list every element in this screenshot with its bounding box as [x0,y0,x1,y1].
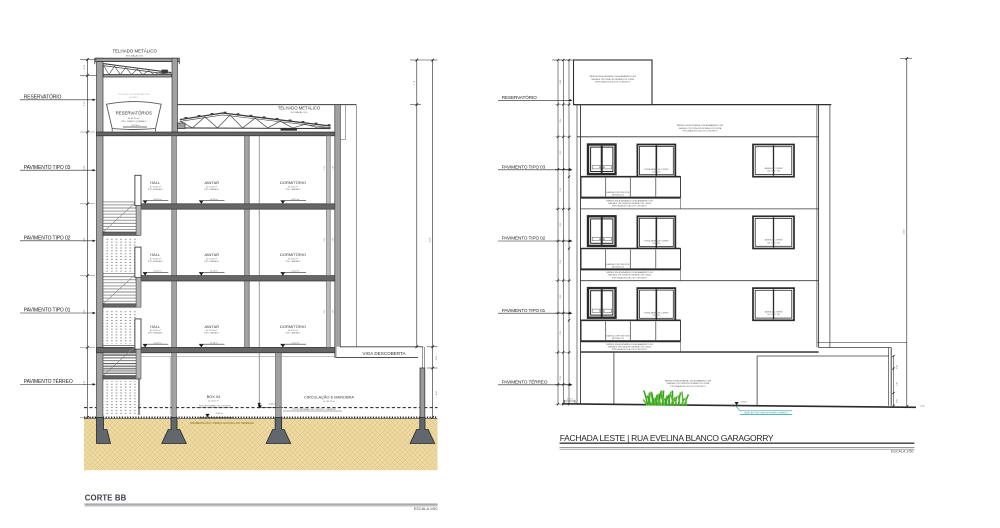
svg-text:PINTURA ACRÍLICA COR CONCRETO: PINTURA ACRÍLICA COR CONCRETO [595,81,631,84]
svg-text:JANELA DE CORRER: JANELA DE CORRER [765,239,784,242]
svg-text:PISO: LAMINADO: PISO: LAMINADO [286,260,301,263]
svg-text:BOX 04: BOX 04 [207,394,221,399]
svg-text:PAVIMENTO TIPO 02: PAVIMENTO TIPO 02 [24,235,71,241]
svg-text:(ALTURA 1.10): (ALTURA 1.10) [612,265,624,268]
svg-text:MASSA E TEXTURA PROJETADA COR: MASSA E TEXTURA PROJETADA COR CINZA [608,274,651,277]
svg-text:TELHADO METÁLICO: TELHADO METÁLICO [278,105,321,110]
svg-text:+8.12 m: +8.12 m [153,199,161,201]
svg-text:+8.12 m: +8.12 m [210,199,218,201]
svg-text:PAVIMENTO TÉRREO: PAVIMENTO TÉRREO [502,378,548,384]
svg-text:CORTE BB: CORTE BB [85,493,127,502]
svg-text:MASSA E TEXTURA PROJETADA COR: MASSA E TEXTURA PROJETADA COR CINZA [608,346,651,349]
svg-text:PAVIMENTO TIPO 03: PAVIMENTO TIPO 03 [24,165,71,171]
svg-text:1.20: 1.20 [560,151,562,155]
svg-text:1.55: 1.55 [560,188,562,192]
svg-text:A: 162.19 m²: A: 162.19 m² [323,400,335,403]
svg-text:1.40: 1.40 [560,80,562,84]
svg-text:JANELA DE CORRER: JANELA DE CORRER [765,167,784,170]
svg-text:RESERVATÓRIOS: RESERVATÓRIOS [116,111,152,116]
svg-text:FACHADA LESTE | RUA EVELINA BL: FACHADA LESTE | RUA EVELINA BLANCO GARAG… [560,433,774,443]
svg-text:+5.12 m: +5.12 m [153,271,161,273]
svg-text:HALL: HALL [150,324,161,329]
svg-text:PAREDE EM ALVENARIA COM ACABAM: PAREDE EM ALVENARIA COM ACABAMENTO EM [606,199,653,202]
svg-text:DORMITÓRIO: DORMITÓRIO [280,180,306,185]
svg-text:200 X 210: 200 X 210 [652,243,660,245]
svg-text:1.05: 1.05 [560,119,562,123]
svg-text:MASSA E TEXTURA PROJETADA COR: MASSA E TEXTURA PROJETADA COR CINZA [592,78,635,81]
svg-text:PINTURA ACRÍLICA COR CONCRETO: PINTURA ACRÍLICA COR CONCRETO [682,130,718,133]
svg-text:+2.12 m: +2.12 m [153,342,161,344]
svg-text:HALL: HALL [150,180,161,185]
svg-text:PISO: LAMINADO: PISO: LAMINADO [286,188,301,191]
svg-text:(ALTURA 1.10): (ALTURA 1.10) [612,337,624,340]
svg-text:PISO INTERTRAVADO DE CONCRETO: PISO INTERTRAVADO DE CONCRETO / DRENANTE [292,408,336,411]
svg-text:DORMITÓRIO: DORMITÓRIO [280,324,306,329]
svg-text:PAREDE EM ALVENARIA COM ACABAM: PAREDE EM ALVENARIA COM ACABAMENTO EM [606,271,653,274]
svg-text:4.20: 4.20 [436,391,438,395]
svg-text:+11.20 m: +11.20 m [130,125,139,127]
svg-text:PINTURA ACRÍLICA COR CONCRETO: PINTURA ACRÍLICA COR CONCRETO [612,205,648,208]
svg-text:100 X 120 / 100: 100 X 120 / 100 [767,242,780,244]
svg-text:(ALTURA 1.10): (ALTURA 1.10) [612,194,624,197]
svg-text:RESERVATÓRIO: RESERVATÓRIO [502,94,537,100]
svg-text:PISO: LAMINADO: PISO: LAMINADO [148,188,163,191]
svg-text:0.00 m: 0.00 m [741,402,748,404]
svg-text:PAREDE EM ALVENARIA COM ACABAM: PAREDE EM ALVENARIA COM ACABAMENTO EM [606,343,653,346]
svg-text:HALL: HALL [150,252,161,257]
svg-text:+2.12 m: +2.12 m [291,342,299,344]
svg-text:PAREDE EM ALVENARIA COM ACABAM: PAREDE EM ALVENARIA COM ACABAMENTO EM [665,379,712,382]
svg-text:RESERVATÓRIO: RESERVATÓRIO [24,93,62,100]
svg-text:TELHADO METÁLICO: TELHADO METÁLICO [112,49,157,54]
svg-text:PINTURA ACRÍLICA COR CONCRETO: PINTURA ACRÍLICA COR CONCRETO [612,348,648,351]
svg-text:100 X 120 / 100: 100 X 120 / 100 [767,314,780,316]
svg-text:DORMITÓRIO: DORMITÓRIO [280,252,306,257]
svg-text:INCLINAÇÃO 10%: INCLINAÇÃO 10% [291,111,308,114]
svg-text:PAVIMENTO TIPO 01: PAVIMENTO TIPO 01 [502,308,546,313]
svg-text:PISO: LAMINADO: PISO: LAMINADO [286,332,301,335]
svg-text:1.20: 1.20 [560,295,562,299]
svg-text:PISO: LAMINADO: PISO: LAMINADO [204,332,219,335]
svg-text:PROJEÇÃO DO RESERVATÓRIO: PROJEÇÃO DO RESERVATÓRIO [118,93,150,96]
svg-text:PINTURA ACRÍLICA COR CONCRETO: PINTURA ACRÍLICA COR CONCRETO [612,276,648,279]
svg-text:200 X 210: 200 X 210 [652,315,660,317]
svg-text:0.60: 0.60 [897,365,899,369]
svg-text:PAVIMENTO TIPO 03: PAVIMENTO TIPO 03 [502,164,546,169]
svg-text:MASSA E TEXTURA PROJETADA COR: MASSA E TEXTURA PROJETADA COR CINZA [679,127,722,130]
svg-text:0.15 m: 0.15 m [567,399,573,401]
svg-text:JANTAR: JANTAR [204,252,219,257]
svg-text:PISO INTERTRAVADO DE CONCRETO: PISO INTERTRAVADO DE CONCRETO [199,405,232,408]
svg-text:2.55: 2.55 [560,376,562,380]
svg-text:JANELA: JANELA [599,238,606,241]
svg-text:PISO: LAMINADO: PISO: LAMINADO [204,188,219,191]
svg-text:+0.00: +0.00 [920,405,925,407]
svg-text:PISO: LAMINADO: PISO: LAMINADO [204,260,219,263]
svg-text:+8.12 m: +8.12 m [291,199,299,201]
svg-text:PAVIMENTO TIPO 02: PAVIMENTO TIPO 02 [502,236,546,241]
svg-text:MASSA E TEXTURA PROJETADA COR: MASSA E TEXTURA PROJETADA COR CINZA [667,382,710,385]
svg-text:INCLINAÇÃO 10%: INCLINAÇÃO 10% [126,54,144,57]
svg-text:+2.12 m: +2.12 m [210,342,218,344]
svg-text:PAREDE EM ALVENARIA COM ACABAM: PAREDE EM ALVENARIA COM ACABAMENTO EM [590,75,637,78]
svg-text:A: 44.76 m²: A: 44.76 m² [128,117,140,120]
svg-text:JANELA: JANELA [599,310,606,313]
svg-text:1.20: 1.20 [560,223,562,227]
svg-text:ELEVADO: ELEVADO [129,96,139,99]
svg-text:0.55: 0.55 [436,356,438,360]
svg-text:200 X 210: 200 X 210 [652,171,660,173]
svg-text:1.55: 1.55 [560,260,562,264]
svg-text:1.55: 1.55 [560,331,562,335]
svg-text:PISO: CIMENTO QUEIMADO: PISO: CIMENTO QUEIMADO [121,120,147,123]
svg-text:PAVIMENTO TIPO 01: PAVIMENTO TIPO 01 [24,308,71,314]
svg-text:PISO: LAMINADO: PISO: LAMINADO [148,260,163,263]
svg-text:VIGA DESCOBERTA: VIGA DESCOBERTA [362,351,406,356]
svg-text:0.62: 0.62 [897,399,899,403]
svg-text:MASSA E TEXTURA PROJETADA COR: MASSA E TEXTURA PROJETADA COR CINZA [608,202,651,205]
svg-text:10.05: 10.05 [429,237,431,243]
svg-text:JANELAS PINTURA EM PRIMER | BR: JANELAS PINTURA EM PRIMER | BRANCO [744,412,788,415]
svg-text:ESCALA 1/50: ESCALA 1/50 [414,506,439,511]
svg-text:JANELA: JANELA [599,166,606,169]
svg-text:+5.12 m: +5.12 m [210,271,218,273]
svg-text:PISO: LAMINADO: PISO: LAMINADO [148,332,163,335]
svg-text:PAVIMENTO TÉRREO: PAVIMENTO TÉRREO [24,378,73,385]
svg-text:ESCALA 1/50: ESCALA 1/50 [891,449,914,453]
svg-text:+5.12 m: +5.12 m [291,271,299,273]
svg-text:-0.45 m: -0.45 m [268,403,276,405]
svg-text:JANELA DE CORRER: JANELA DE CORRER [765,311,784,314]
svg-text:CIRCULAÇÃO E MANOBRA: CIRCULAÇÃO E MANOBRA [304,395,354,400]
svg-text:PAREDE EM ALVENARIA COM ACABAM: PAREDE EM ALVENARIA COM ACABAMENTO EM [677,124,724,127]
svg-text:JANTAR: JANTAR [204,180,219,185]
svg-text:13.52: 13.52 [903,229,905,235]
svg-text:100 X 120 / 100: 100 X 120 / 100 [767,171,780,173]
svg-text:JANTAR: JANTAR [204,324,219,329]
svg-text:1.95: 1.95 [897,382,899,386]
svg-text:A: 10.61 m²: A: 10.61 m² [208,399,219,402]
svg-text:-0.52 m: -0.52 m [215,413,223,415]
svg-text:PINTURA ACRÍLICA COR CONCRETO: PINTURA ACRÍLICA COR CONCRETO [670,385,706,388]
